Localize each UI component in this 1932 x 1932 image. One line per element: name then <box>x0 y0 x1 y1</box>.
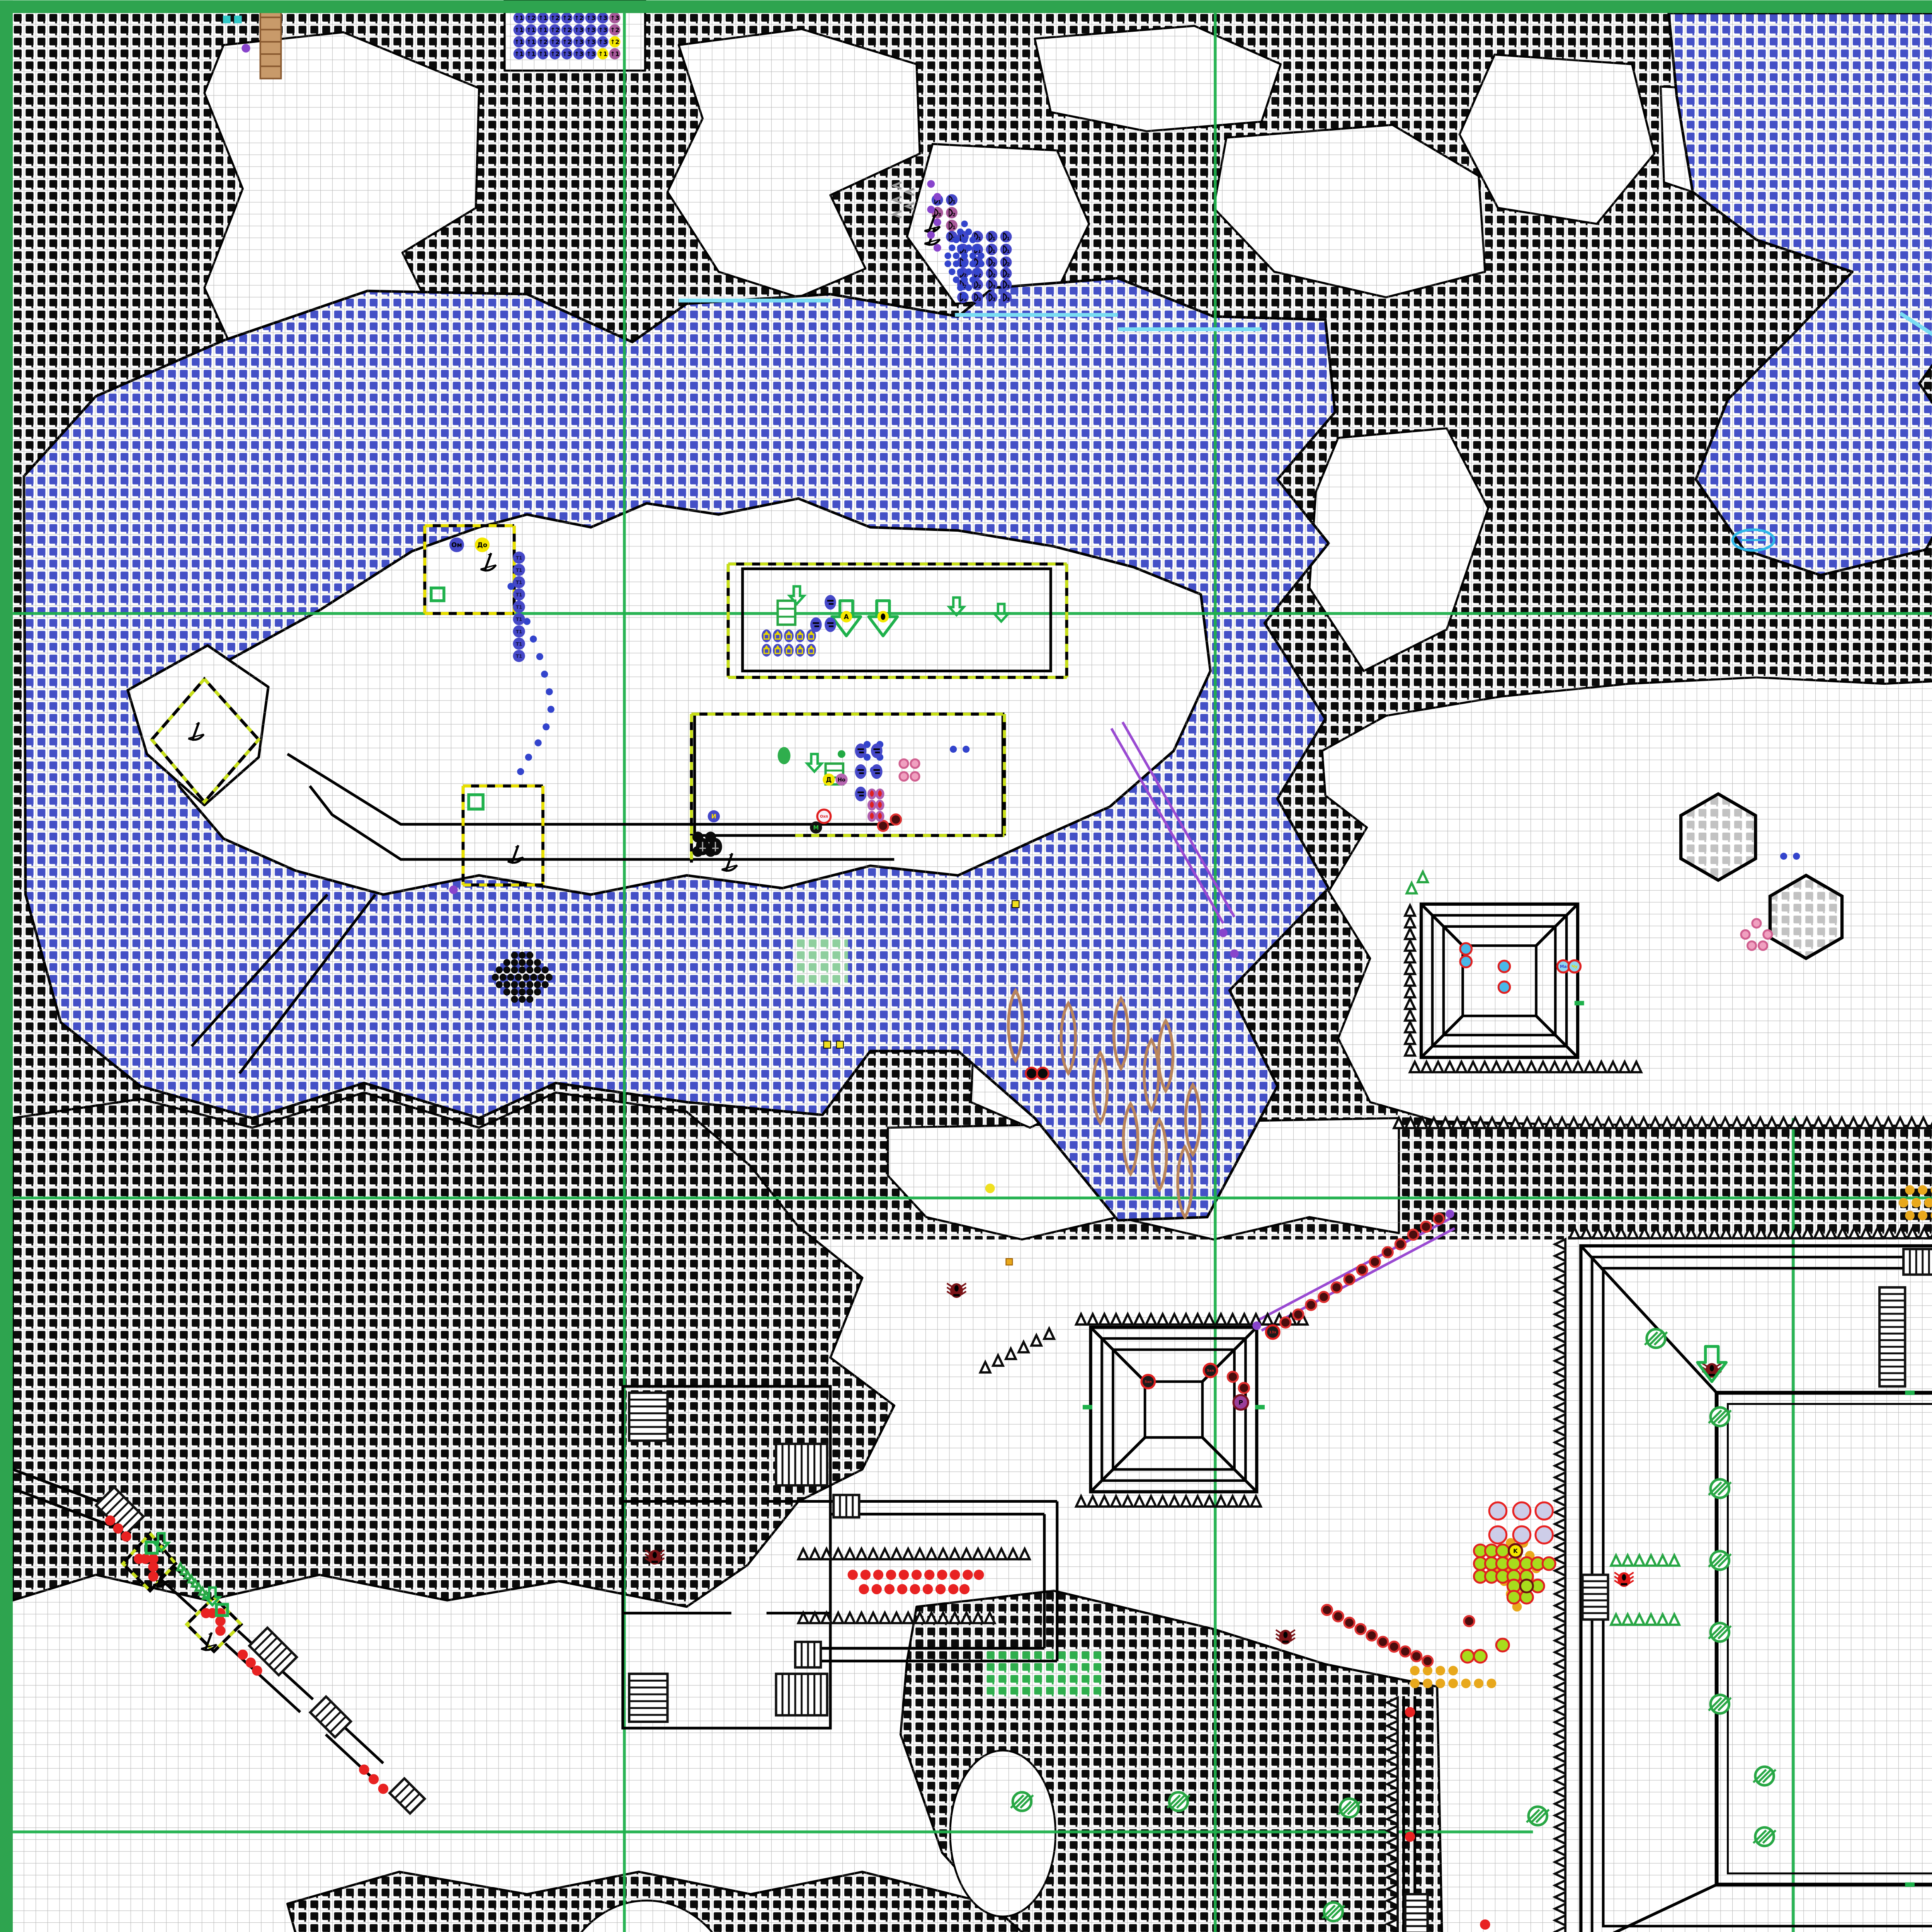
svg-text:↑2: ↑2 <box>610 26 619 34</box>
svg-text:↑3: ↑3 <box>574 38 583 46</box>
dot-marker <box>1410 1666 1420 1675</box>
tiny-square-yellow <box>1012 901 1019 908</box>
archer-circle: 2 <box>1000 257 1012 268</box>
flame-oval <box>867 789 876 799</box>
svg-text:↑1: ↑1 <box>514 38 524 46</box>
dot-marker <box>1899 1198 1908 1207</box>
lamp-oval <box>784 629 794 642</box>
green-hatched-circle <box>1709 1695 1731 1713</box>
grate <box>1879 1287 1905 1386</box>
frame-left <box>0 0 13 1932</box>
svg-text:↑3: ↑3 <box>586 38 595 46</box>
grate <box>778 601 795 625</box>
dot-marker <box>1498 961 1510 972</box>
flame-oval <box>876 811 884 822</box>
flame-oval <box>867 811 876 822</box>
purple-dot <box>934 244 941 252</box>
dot-marker <box>449 886 458 894</box>
dot-marker <box>1306 1300 1316 1310</box>
lamp-oval <box>806 644 816 656</box>
dot-marker <box>1480 1919 1490 1929</box>
svg-text:A: A <box>844 613 849 621</box>
archer-circle: 2 <box>986 257 998 268</box>
svg-text:1: 1 <box>952 225 956 230</box>
dot-marker <box>963 746 969 753</box>
green-hatched-circle <box>1709 1551 1731 1570</box>
dot-marker <box>1461 1679 1471 1688</box>
svg-text:↑2: ↑2 <box>550 26 560 34</box>
green-hatched-circle <box>1011 1792 1033 1811</box>
svg-text:3: 3 <box>1007 297 1010 302</box>
dot-marker <box>950 1570 960 1580</box>
dot-marker <box>369 1774 379 1784</box>
svg-text:Д: Д <box>826 776 832 783</box>
green-oval <box>778 747 791 764</box>
archer-circle: 1 <box>946 194 957 206</box>
dot-marker <box>1319 1292 1329 1302</box>
archer-circle: 1 <box>986 244 998 255</box>
archer-circle: 1 <box>986 231 998 243</box>
svg-text:↑1: ↑1 <box>598 50 607 58</box>
dot-marker <box>935 1584 946 1594</box>
dot-marker <box>1239 1383 1249 1393</box>
green-hatched-circle <box>1709 1623 1731 1641</box>
stairs-column: Т1Т1Т1Т1Т1Т1Т1Т1Т1 <box>513 551 525 662</box>
svg-text:↑2: ↑2 <box>562 26 571 34</box>
svg-text:2: 2 <box>1007 262 1010 267</box>
dot-marker <box>1355 1624 1366 1634</box>
svg-text:Т1: Т1 <box>516 654 522 659</box>
svg-text:↑3: ↑3 <box>610 14 619 22</box>
dot-marker <box>1281 1317 1291 1327</box>
svg-text:K: K <box>1513 1548 1518 1554</box>
door-tick <box>1905 1883 1915 1887</box>
dot-marker <box>948 1584 958 1594</box>
svg-text:↑2: ↑2 <box>550 38 560 46</box>
dot-marker <box>1460 943 1472 955</box>
tiny-square-cyan <box>234 15 242 23</box>
svg-text:↑3: ↑3 <box>574 50 583 58</box>
dot-marker <box>974 1570 984 1580</box>
svg-text:2: 2 <box>1007 273 1010 278</box>
dot-marker <box>1513 1502 1531 1520</box>
dot-marker <box>252 1665 262 1675</box>
dot-marker <box>959 1584 969 1594</box>
dot-marker <box>1252 1321 1261 1330</box>
dot-marker <box>838 750 845 758</box>
dot-marker <box>535 739 542 746</box>
dot-marker <box>878 821 888 831</box>
svg-text:1: 1 <box>952 199 956 204</box>
dot-marker <box>1435 1679 1445 1688</box>
dot-marker <box>1905 1185 1915 1195</box>
rune-oval <box>825 595 836 610</box>
svg-text:Ма: Ма <box>1560 964 1567 969</box>
dot-marker <box>937 1570 947 1580</box>
dot-marker <box>1752 919 1761 927</box>
dot-marker <box>911 759 919 768</box>
dot-marker <box>923 1584 933 1594</box>
archer-circle: 1 <box>946 220 957 231</box>
dot-marker <box>1423 1679 1432 1688</box>
dot-marker <box>1474 1650 1486 1663</box>
dot-marker <box>1230 949 1238 958</box>
labeled-circle: K <box>1509 1544 1522 1558</box>
archer-circle: 3 <box>1000 279 1012 291</box>
dot-marker <box>121 1531 131 1541</box>
svg-text:Охп: Охп <box>820 815 828 819</box>
dot-marker <box>238 1650 248 1660</box>
dot-marker <box>1026 1068 1037 1079</box>
svg-text:↑2: ↑2 <box>574 14 583 22</box>
svg-text:↑1: ↑1 <box>526 38 536 46</box>
svg-text:↑3: ↑3 <box>586 50 595 58</box>
grate <box>1903 1249 1932 1275</box>
grate <box>629 1393 667 1440</box>
labeled-circle: Ом <box>449 537 464 552</box>
dot-marker <box>1741 930 1750 939</box>
svg-text:До: До <box>477 541 487 549</box>
svg-text:Т1: Т1 <box>516 617 522 622</box>
dot-marker <box>1918 1211 1927 1220</box>
rune-oval <box>825 617 836 632</box>
green-hatched-circle <box>1753 1767 1776 1785</box>
dot-marker <box>1461 1650 1474 1663</box>
svg-text:3: 3 <box>1007 284 1010 289</box>
tiny-square <box>1006 1259 1013 1265</box>
green-hatched-circle <box>1527 1807 1549 1825</box>
grate <box>629 1674 667 1722</box>
labeled-circle: М <box>810 821 822 833</box>
svg-text:↑1: ↑1 <box>538 50 548 58</box>
svg-text:↑1: ↑1 <box>538 26 548 34</box>
svg-text:↑2: ↑2 <box>538 38 548 46</box>
dot-marker <box>873 1570 883 1580</box>
svg-text:5хп: 5хп <box>1207 1369 1214 1373</box>
rune-oval <box>810 617 822 632</box>
svg-text:↑1: ↑1 <box>538 14 548 22</box>
dot-marker <box>543 723 549 730</box>
dot-marker <box>546 688 553 695</box>
svg-text:Т1: Т1 <box>516 555 522 561</box>
svg-text:2: 2 <box>992 273 995 278</box>
svg-text:3: 3 <box>992 297 995 302</box>
dot-marker <box>1037 1068 1049 1079</box>
dot-marker <box>872 1584 882 1594</box>
dot-marker <box>1378 1637 1388 1647</box>
flame-oval <box>876 800 884 811</box>
dot-marker <box>950 746 957 753</box>
svg-text:1: 1 <box>1007 249 1010 254</box>
svg-text:↑3: ↑3 <box>586 26 595 34</box>
dot-marker <box>1543 1557 1555 1570</box>
svg-text:↑3: ↑3 <box>598 26 607 34</box>
grate <box>1405 1894 1428 1932</box>
dot-marker <box>525 754 532 761</box>
svg-text:1: 1 <box>992 236 995 241</box>
dot-marker <box>1434 1214 1444 1224</box>
dot-marker <box>241 44 250 53</box>
lamp-oval <box>773 644 782 656</box>
dot-marker <box>910 1584 920 1594</box>
lamp-oval <box>762 644 771 656</box>
archer-circle: 2 <box>946 207 957 219</box>
dot-marker <box>1536 1502 1553 1520</box>
dot-marker <box>912 1570 922 1580</box>
rune-oval <box>855 787 867 801</box>
lamp-oval <box>795 629 805 642</box>
green-hatched-circle <box>1753 1827 1776 1846</box>
dot-marker <box>1405 1707 1415 1717</box>
svg-text:↑3: ↑3 <box>598 14 607 22</box>
svg-text:↑1: ↑1 <box>514 50 524 58</box>
dot-marker <box>536 653 543 660</box>
svg-text:13х: 13х <box>1269 1331 1276 1335</box>
door-tick <box>1255 1405 1265 1410</box>
dot-marker <box>1793 853 1800 860</box>
dot-marker <box>1520 1580 1533 1592</box>
dot-marker <box>1448 1666 1458 1675</box>
dot-marker <box>1918 1185 1927 1195</box>
svg-text:Ом: Ом <box>451 541 462 549</box>
rune-oval <box>855 743 867 758</box>
dot-marker <box>1411 1651 1421 1661</box>
svg-text:3: 3 <box>992 284 995 289</box>
dot-marker <box>1395 1239 1405 1249</box>
archer-circle: 3 <box>971 292 983 303</box>
svg-text:↑3: ↑3 <box>586 14 595 22</box>
svg-text:Т1: Т1 <box>516 604 522 610</box>
dot-marker <box>1507 1591 1520 1604</box>
dot-marker <box>1332 1282 1342 1292</box>
dot-marker <box>900 772 908 781</box>
archer-circle: 1 <box>1000 244 1012 255</box>
labeled-circle: Но <box>835 774 847 786</box>
rune-oval <box>855 764 867 779</box>
labeled-circle: Р <box>1233 1395 1248 1410</box>
svg-text:↑1: ↑1 <box>526 50 536 58</box>
tiny-square-cyan <box>223 15 231 23</box>
svg-text:3: 3 <box>938 212 941 218</box>
labeled-circle: Охп <box>817 810 831 823</box>
dot-marker <box>113 1524 123 1534</box>
dot-marker <box>517 768 524 775</box>
green-hatched-circle <box>1167 1792 1190 1811</box>
grate <box>795 1642 821 1667</box>
svg-text:↑3: ↑3 <box>574 26 583 34</box>
purple-dot <box>927 206 935 213</box>
dot-marker <box>1536 1526 1553 1544</box>
dot-marker <box>148 1562 158 1572</box>
dot-marker <box>1764 930 1772 939</box>
dot-marker <box>891 815 901 825</box>
dot-marker <box>1464 1616 1474 1626</box>
dot-marker <box>1367 1630 1377 1640</box>
door-tick <box>1905 1391 1915 1395</box>
svg-text:↑2: ↑2 <box>562 14 571 22</box>
lamp-oval <box>762 629 771 642</box>
svg-text:↑1: ↑1 <box>514 26 524 34</box>
dot-marker <box>886 1570 896 1580</box>
dot-marker <box>1400 1646 1410 1656</box>
lamp-oval <box>784 644 794 656</box>
svg-text:Т1: Т1 <box>516 641 522 647</box>
dot-marker <box>1423 1666 1432 1675</box>
lamp-oval <box>795 644 805 656</box>
dot-marker <box>548 706 554 713</box>
dot-marker <box>1912 1198 1921 1207</box>
rune-oval <box>871 764 883 779</box>
svg-text:1: 1 <box>978 236 981 241</box>
archer-circle: 3 <box>1000 292 1012 303</box>
dot-marker <box>1496 1544 1509 1557</box>
dot-marker <box>1344 1617 1354 1628</box>
dot-marker <box>359 1765 369 1775</box>
dot-marker <box>1219 929 1227 937</box>
green-hatched-circle <box>1645 1329 1667 1348</box>
dot-marker <box>924 1570 934 1580</box>
svg-text:↑2: ↑2 <box>550 14 560 22</box>
map-canvas: AТаАу↑1↑2↑1↑2↑2↑2↑3↑3↑3↑1↑1↑1↑2↑2↑3↑3↑3↑… <box>0 0 1932 1932</box>
dot-marker <box>1333 1611 1343 1621</box>
svg-text:1: 1 <box>992 249 995 254</box>
dot-marker <box>1489 1502 1507 1520</box>
dot-marker <box>1905 1211 1915 1220</box>
dot-marker <box>105 1515 115 1526</box>
labeled-circle: 5хп <box>1141 1375 1155 1388</box>
svg-text:М: М <box>813 824 819 831</box>
purple-dot <box>927 231 935 239</box>
svg-text:Т1: Т1 <box>516 580 522 585</box>
svg-text:3: 3 <box>978 297 981 302</box>
svg-text:↑3: ↑3 <box>562 50 571 58</box>
dot-marker <box>215 1616 225 1626</box>
frame-top <box>0 0 1932 13</box>
dot-marker <box>861 1570 871 1580</box>
grate <box>833 1495 859 1517</box>
svg-text:Т1: Т1 <box>516 568 522 573</box>
dot-marker <box>378 1784 388 1794</box>
svg-text:↑2: ↑2 <box>550 50 560 58</box>
dot-marker <box>911 772 919 781</box>
dot-marker <box>1498 981 1510 993</box>
dot-marker <box>1421 1221 1431 1231</box>
svg-text:2: 2 <box>992 262 995 267</box>
archer-circle: 2 <box>1000 268 1012 279</box>
grate <box>776 1674 827 1715</box>
dot-marker <box>541 671 548 678</box>
svg-text:2: 2 <box>978 284 981 289</box>
svg-text:↑2: ↑2 <box>526 14 536 22</box>
dot-marker <box>1370 1257 1380 1267</box>
dot-marker <box>530 636 537 643</box>
dot-marker <box>1410 1679 1420 1688</box>
dot-marker <box>1228 1372 1238 1382</box>
green-hatched-circle <box>1338 1799 1361 1817</box>
black-unit-oval <box>709 838 722 855</box>
purple-dot <box>927 180 935 188</box>
dot-marker <box>1460 956 1472 968</box>
dot-marker <box>1405 1832 1415 1842</box>
dot-marker <box>215 1626 225 1636</box>
grid-overlay <box>13 13 1932 1932</box>
dot-marker <box>848 1570 858 1580</box>
dot-marker <box>1357 1265 1367 1275</box>
dot-marker <box>1389 1641 1399 1651</box>
svg-text:↑1: ↑1 <box>610 50 619 58</box>
green-hatched-circle <box>1322 1903 1345 1921</box>
purple-dot <box>934 193 941 201</box>
svg-text:↑1: ↑1 <box>514 14 524 22</box>
dot-marker <box>1435 1666 1445 1675</box>
dot-marker <box>1487 1679 1497 1688</box>
flame-oval <box>867 800 876 811</box>
lamp-oval <box>773 629 782 642</box>
dot-marker <box>1747 941 1756 950</box>
svg-text:Р: Р <box>1238 1399 1243 1406</box>
dot-marker <box>1489 1526 1507 1544</box>
flame-oval <box>876 789 884 799</box>
dot-marker <box>1496 1639 1509 1651</box>
dot-marker <box>1446 1209 1454 1218</box>
green-hatched-circle <box>1709 1407 1731 1426</box>
svg-text:И: И <box>711 813 716 820</box>
dot-marker <box>1448 1679 1458 1688</box>
dot-marker <box>884 1584 895 1594</box>
labeled-circle: До <box>475 537 490 552</box>
dot-marker <box>1422 1656 1432 1666</box>
svg-text:↑3: ↑3 <box>598 38 607 46</box>
dot-marker <box>1513 1526 1531 1544</box>
dot-marker <box>1293 1310 1303 1320</box>
svg-text:↑2: ↑2 <box>610 38 619 46</box>
dot-marker <box>246 1658 256 1668</box>
svg-text:2: 2 <box>952 212 956 218</box>
purple-dot <box>934 218 941 226</box>
tiny-square-yellow <box>824 1041 831 1048</box>
labeled-circle: Чу <box>1568 960 1580 972</box>
door-tick <box>1083 1405 1092 1410</box>
svg-text:Но: Но <box>838 777 845 783</box>
dot-marker <box>1507 1557 1520 1570</box>
dot-marker <box>899 1570 909 1580</box>
dot-marker <box>859 1584 869 1594</box>
dot-marker <box>1408 1230 1418 1240</box>
labeled-circle: Д <box>823 774 835 786</box>
dot-marker <box>1383 1247 1393 1257</box>
dot-marker <box>1759 941 1767 950</box>
dot-marker <box>1780 853 1787 860</box>
dot-marker <box>900 759 908 768</box>
game-map: AТаАу↑1↑2↑1↑2↑2↑2↑3↑3↑3↑1↑1↑1↑2↑2↑3↑3↑3↑… <box>0 0 1932 1932</box>
dot-marker <box>1474 1679 1483 1688</box>
grate <box>1582 1575 1608 1620</box>
dot-marker <box>1344 1274 1354 1284</box>
tiny-square-yellow <box>837 1041 844 1048</box>
green-hatched-circle <box>1709 1479 1731 1498</box>
grate <box>776 1444 827 1485</box>
svg-text:↑2: ↑2 <box>562 38 571 46</box>
dot-marker <box>148 1571 158 1582</box>
svg-text:Т1: Т1 <box>516 592 522 598</box>
labeled-circle: 5хп <box>1204 1364 1217 1377</box>
door-tick <box>1575 1001 1584 1005</box>
archer-circle: 3 <box>986 279 998 291</box>
labeled-circle: 13х <box>1266 1325 1279 1339</box>
svg-text:Чу: Чу <box>1571 964 1578 969</box>
rune-oval <box>871 743 883 758</box>
archer-circle: 2 <box>986 268 998 279</box>
